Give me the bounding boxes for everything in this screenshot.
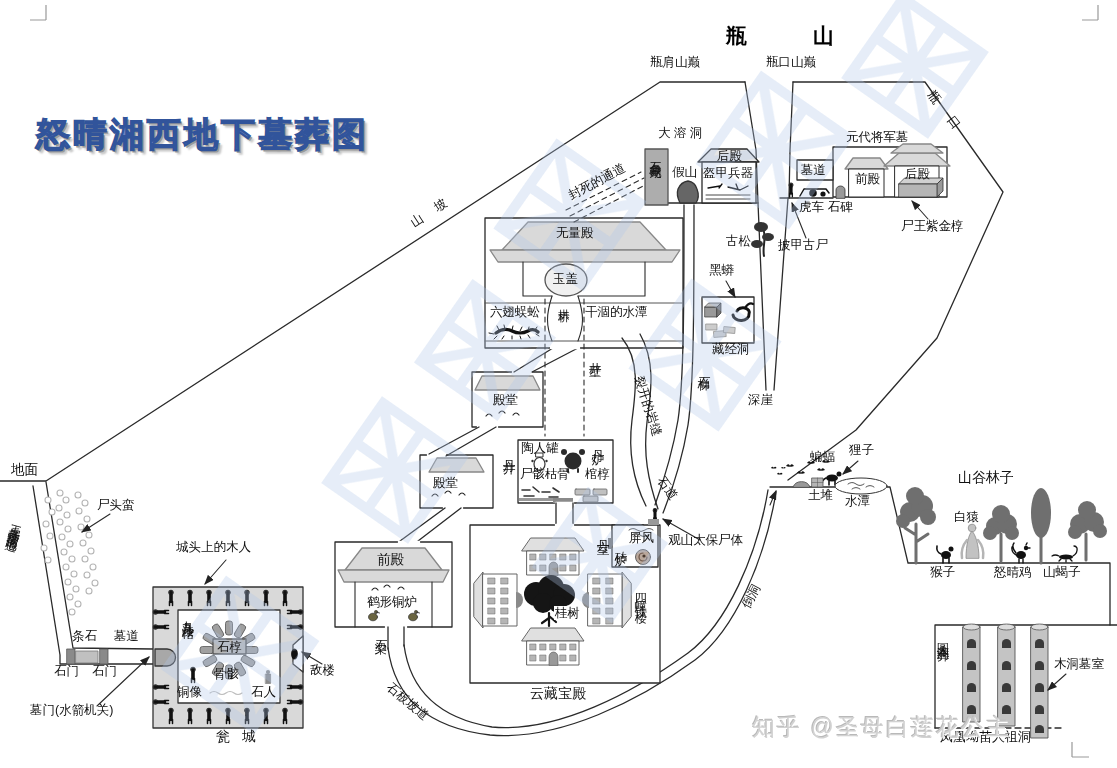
label-shiwang-zijinchun: 尸王紫金椁 xyxy=(901,219,964,233)
zhihu-watermark: 知乎 @圣母白莲花公主 xyxy=(752,712,1011,743)
label-pijia-gushi: 披甲古尸 xyxy=(778,238,828,252)
label-shuitan: 水潭 xyxy=(845,494,870,508)
label-pingfeng: 屏风 xyxy=(629,531,654,545)
label-guishu: 桂树 xyxy=(554,606,581,620)
label-jingbi: 井壁 xyxy=(588,352,602,356)
label-shiti: 石梯 xyxy=(697,366,711,370)
label-mumen: 墓门(水箭机关) xyxy=(30,703,113,717)
label-diantang-1: 殿堂 xyxy=(493,393,518,407)
label-taorenguang: 陶人罐 xyxy=(521,441,559,455)
label-jiashan: 假山 xyxy=(672,165,697,179)
label-cangjingdong: 藏经洞 xyxy=(712,342,750,356)
label-mudao-top: 墓道 xyxy=(801,163,826,177)
label-shiren: 石人 xyxy=(251,685,276,699)
label-danshi: 丹室 xyxy=(596,530,610,534)
label-yuanmu-dongzang: 圆木洞葬 xyxy=(936,633,950,641)
label-hexing-tonglu: 鹤形铜炉 xyxy=(367,595,417,609)
label-ping-jian-summit: 瓶肩山巅 xyxy=(650,55,700,69)
label-heimang: 黑蟒 xyxy=(709,263,734,277)
label-shangu-linzi: 山谷林子 xyxy=(958,470,1014,486)
label-daodong: 倒洞 xyxy=(739,582,763,611)
label-shanxiezi: 山蝎子 xyxy=(1043,565,1081,579)
label-nuqingji: 怒晴鸡 xyxy=(994,565,1032,579)
label-ping-kou-summit: 瓶口山巅 xyxy=(766,55,816,69)
label-zhuanlu: 砖炉 xyxy=(614,541,628,545)
label-dimian: 地面 xyxy=(11,462,38,477)
label-chengtou-muren: 城头上的木人 xyxy=(176,540,251,554)
label-jiuju-qiguan: 九具漆棺 xyxy=(181,611,195,619)
label-bianfu: 蝙蝠 xyxy=(810,450,835,464)
label-houdian-cave: 后殿 xyxy=(717,149,742,163)
label-shitouman: 尸头蛮 xyxy=(97,498,135,512)
map-labels: 瓶肩山巅瓶口山巅瓶 口大 溶 洞石条砌死假山后殿盔甲兵器封死的通道山 坡元代将军… xyxy=(0,0,1117,768)
label-huche-shibei: 虎车 石碑 xyxy=(799,200,852,214)
label-liekai-yanfeng: 裂开的岩缝 xyxy=(632,374,665,438)
label-shiban-podao: 石板坡道 xyxy=(384,680,431,723)
label-lizi: 狸子 xyxy=(849,443,874,457)
label-yuandai-tomb: 元代将军墓 xyxy=(846,130,909,144)
label-gongbing-didao: 工兵掘子营挖的地道 xyxy=(7,514,25,535)
label-shimen-1: 石门 xyxy=(54,664,79,678)
label-shenya: 深崖 xyxy=(748,393,773,407)
label-danlu: 丹炉 xyxy=(591,440,605,444)
label-kuijia-bingqi: 盔甲兵器 xyxy=(703,166,753,180)
label-shichun: 石椁 xyxy=(217,640,242,654)
label-ganhe-shuitan: 干涸的水潭 xyxy=(585,305,648,319)
label-tudui: 土堆 xyxy=(808,488,833,502)
label-wuliangdian: 无量殿 xyxy=(556,226,594,240)
label-shihai-kugu: 尸骸枯骨 xyxy=(520,467,570,481)
label-baiyuan: 白猿 xyxy=(954,510,979,524)
label-guanshan-taibao: 观山太保尸体 xyxy=(668,533,743,547)
label-liuchi-wugong: 六翅蜈蚣 xyxy=(490,305,540,319)
label-gongqiao: 拱桥 xyxy=(557,300,570,304)
label-yugai: 玉盖 xyxy=(553,272,578,286)
label-houzi: 猴子 xyxy=(930,565,955,579)
label-mudao-left: 墓道 xyxy=(114,629,139,643)
label-qiandian-main: 前殿 xyxy=(377,552,404,567)
label-pingkou-slope: 瓶 口 xyxy=(925,88,968,138)
label-danjing: 丹井 xyxy=(502,450,516,454)
label-dilou: 敌楼 xyxy=(310,663,335,677)
label-wengcheng: 瓮 城 xyxy=(216,729,260,745)
label-mudong-mushi: 木洞墓室 xyxy=(1054,657,1104,671)
label-yuncang-baodian: 云藏宝殿 xyxy=(530,686,586,702)
label-gusong: 古松 xyxy=(726,234,751,248)
label-shiliang: 石梁 xyxy=(374,629,388,633)
label-gubai: 骨骸 xyxy=(214,667,239,681)
label-da-rong-dong: 大 溶 洞 xyxy=(658,126,702,140)
label-shimen-2: 石门 xyxy=(92,664,117,678)
label-shitiao-qisi: 石条砌死 xyxy=(648,152,661,160)
label-tiaoshi: 条石 xyxy=(72,629,97,643)
label-fengsi-tongdao: 封死的通道 xyxy=(566,161,628,203)
label-sichuang-tielou: 四幢铁楼 xyxy=(634,583,648,607)
label-guanchun: 棺椁 xyxy=(585,467,610,481)
label-houdian-top: 后殿 xyxy=(905,167,930,181)
label-qiandian-top: 前殿 xyxy=(855,172,880,186)
label-shanpo: 山 坡 xyxy=(408,193,455,230)
label-tongxiang: 铜像 xyxy=(177,685,202,699)
label-diantang-2: 殿堂 xyxy=(433,476,458,490)
tomb-map-canvas: 怒晴湘西地下墓葬图 瓶 山 知乎 @圣母白莲花公主 瓶肩山巅瓶口山巅瓶 口大 溶… xyxy=(0,0,1117,768)
label-shidao: 石道 xyxy=(655,474,681,503)
